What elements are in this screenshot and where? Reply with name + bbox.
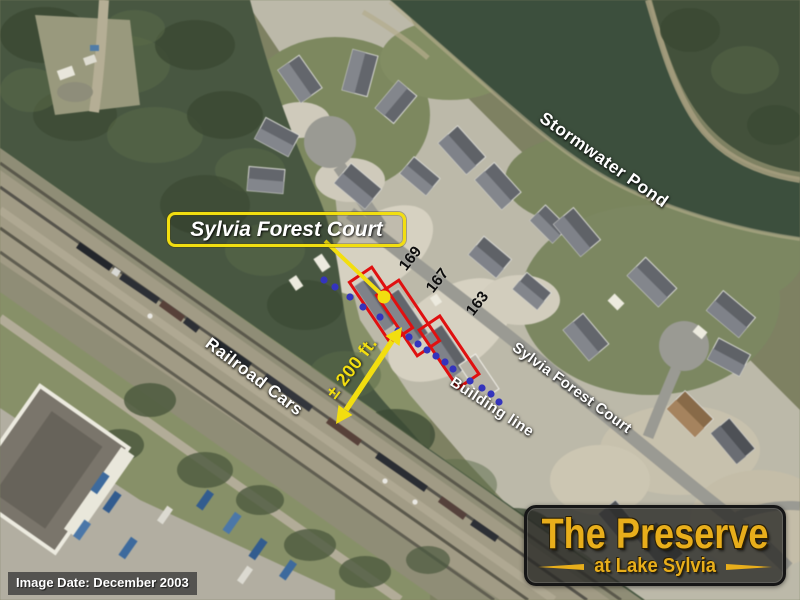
logo-subtitle-row: at Lake Sylvia: [538, 555, 772, 578]
logo-title: The Preserve: [542, 514, 769, 554]
logo-flourish-left: [538, 563, 584, 571]
logo-subtitle: at Lake Sylvia: [594, 555, 716, 578]
logo-flourish-right: [726, 563, 772, 571]
street-callout-box: Sylvia Forest Court: [167, 212, 406, 247]
annotated-aerial-map: Stormwater Pond Railroad Cars ± 200 ft. …: [0, 0, 800, 600]
street-callout-label: Sylvia Forest Court: [190, 218, 383, 242]
image-date-badge: Image Date: December 2003: [8, 572, 197, 595]
logo-plaque: The Preserve at Lake Sylvia: [524, 505, 786, 586]
